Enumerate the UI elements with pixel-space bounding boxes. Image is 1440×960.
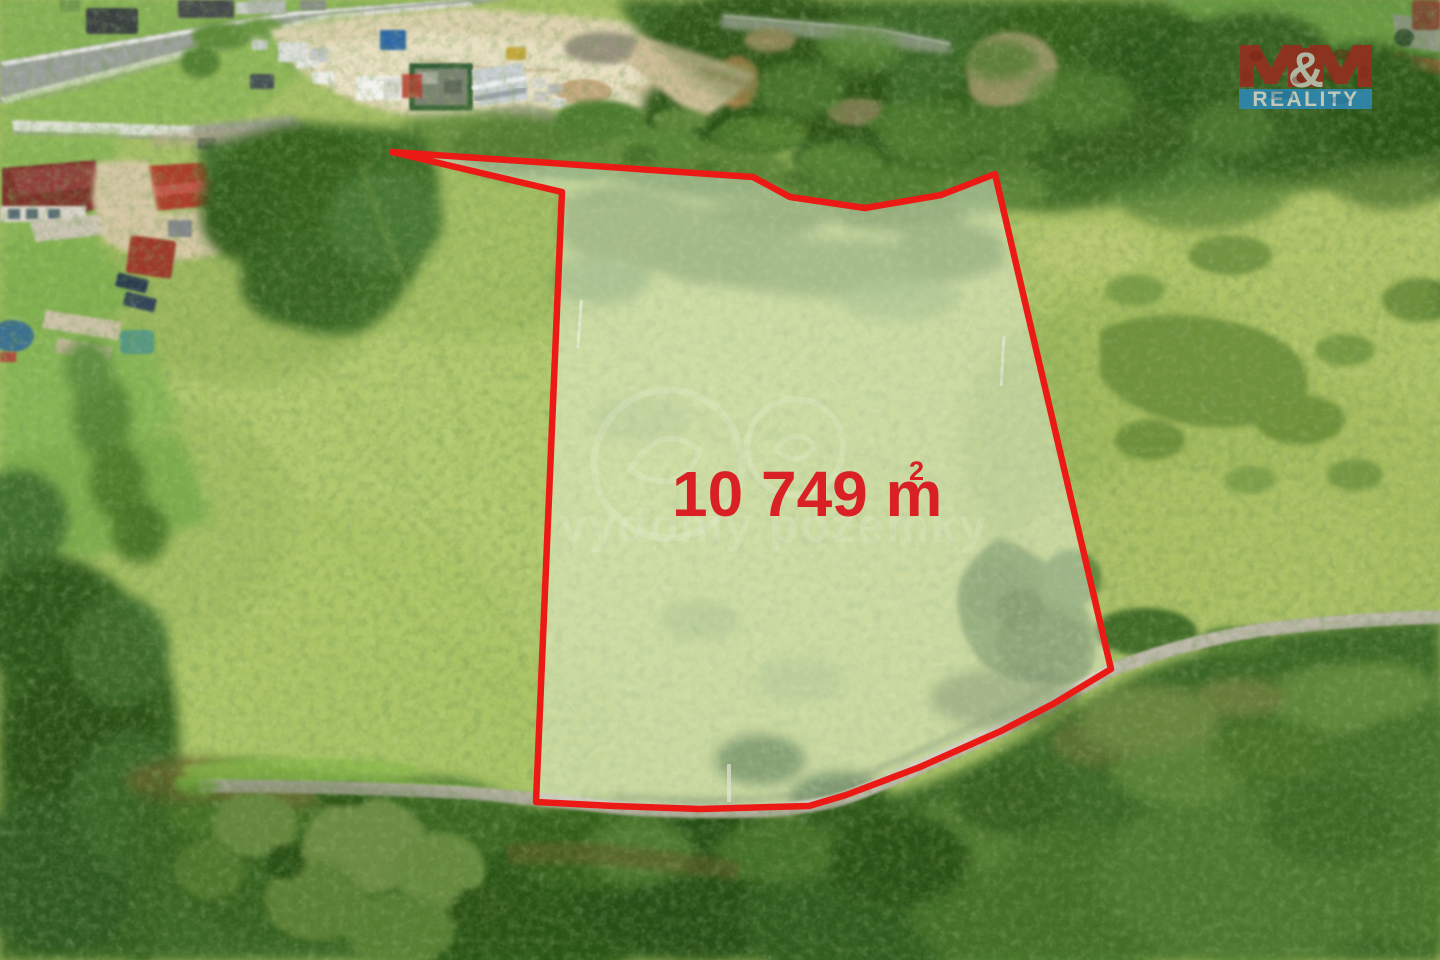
- svg-text:2: 2: [909, 456, 924, 486]
- svg-text:10 749 m: 10 749 m: [672, 458, 942, 530]
